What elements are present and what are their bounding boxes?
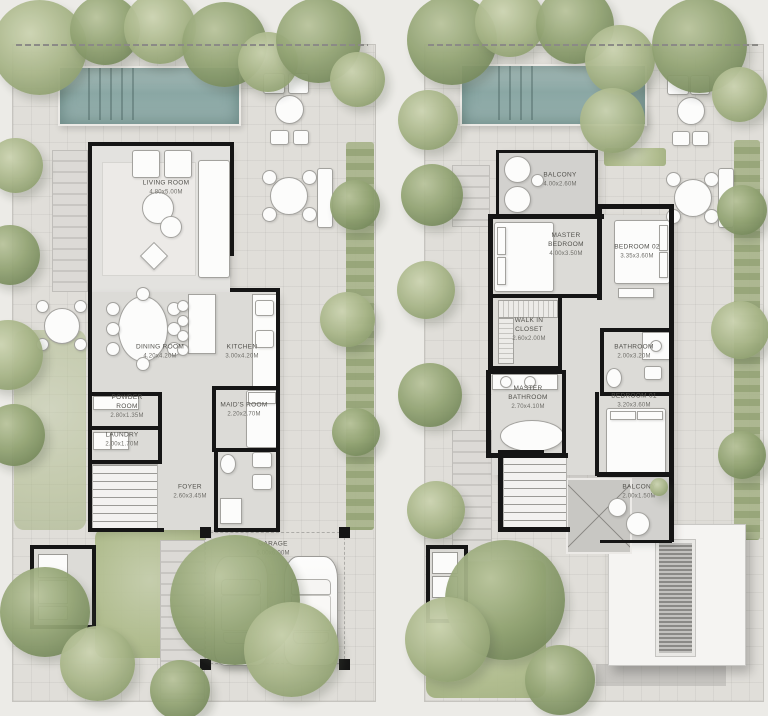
room-label-bedroom-01: BEDROOM 013.20x3.60M: [611, 393, 657, 410]
tree: [320, 292, 375, 347]
tree: [332, 408, 380, 456]
room-label-dining-room: DINING ROOM4.20x4.20M: [136, 344, 184, 361]
staircase: [92, 464, 158, 530]
roof-louver: [656, 540, 695, 656]
wall: [562, 370, 566, 458]
wall: [597, 472, 674, 477]
garden-table: [44, 308, 80, 344]
balcony-lounge-chair: [504, 186, 531, 213]
tree: [60, 626, 135, 701]
pillow: [497, 257, 506, 285]
tree: [401, 164, 463, 226]
balcony-lounge-chair: [504, 156, 531, 183]
armchair: [164, 150, 192, 178]
garden-chair: [36, 300, 49, 313]
armchair: [132, 150, 160, 178]
bed-bench: [618, 288, 654, 298]
wall: [214, 528, 280, 532]
sofa: [198, 160, 230, 278]
dining-chair: [106, 342, 120, 356]
wall: [600, 328, 604, 396]
terrace-chair: [666, 172, 681, 187]
room-label-living-room: LIVING ROOM4.80x5.00M: [143, 180, 190, 197]
tree: [150, 660, 210, 716]
terrace-chair: [262, 207, 277, 222]
tree: [525, 645, 595, 715]
room-label-laundry: LAUNDRY2.00x1.70M: [105, 432, 138, 449]
tree: [717, 185, 767, 235]
balcony-chair: [626, 512, 650, 536]
tree: [244, 602, 339, 697]
tree: [330, 52, 385, 107]
terrace-chair: [262, 170, 277, 185]
bar-stool: [177, 330, 189, 342]
wall: [488, 214, 493, 370]
sink: [644, 366, 662, 380]
fence-line: [428, 44, 758, 46]
sink: [252, 452, 272, 468]
tree: [711, 301, 768, 359]
room-label-balcony-top: BALCONY4.00x2.60M: [543, 172, 576, 189]
dining-chair: [106, 322, 120, 336]
fence-line: [16, 44, 368, 46]
wall: [212, 386, 216, 452]
wall: [276, 288, 280, 532]
outdoor-round-table: [677, 97, 705, 125]
bar-stool: [177, 315, 189, 327]
wall: [600, 204, 674, 209]
wall: [600, 540, 672, 543]
wall: [212, 448, 280, 452]
wall: [498, 527, 570, 532]
room-label-bedroom-02: BEDROOM 023.35x3.60M: [614, 244, 660, 261]
wall: [88, 460, 160, 464]
wall: [214, 448, 218, 528]
garden-steps-path: [52, 150, 88, 292]
wall: [490, 294, 602, 298]
coffee-table: [160, 216, 182, 238]
room-label-walk-in-closet: WALK IN CLOSET2.60x2.00M: [508, 317, 550, 343]
shower: [220, 498, 242, 524]
bidet: [252, 474, 272, 490]
garage-post: [339, 527, 350, 538]
wall: [595, 392, 599, 476]
room-label-master-bathroom: MASTER BATHROOM2.70x4.10M: [502, 385, 554, 411]
wall: [496, 150, 499, 218]
bar-stool: [177, 300, 189, 312]
wall: [486, 370, 491, 458]
lounge-chair: [270, 130, 289, 145]
wall: [558, 298, 562, 370]
wall: [496, 150, 598, 153]
lounge-chair: [672, 131, 690, 146]
kitchen-island: [188, 294, 216, 354]
garage-post: [339, 659, 350, 670]
wardrobe: [498, 300, 558, 318]
wall: [600, 328, 672, 332]
tree: [580, 88, 645, 153]
wall: [158, 392, 162, 464]
toilet: [606, 368, 622, 388]
tree: [330, 180, 380, 230]
terrace-chair: [704, 172, 719, 187]
wall: [498, 450, 503, 532]
wall: [498, 450, 544, 455]
lounge-chair: [692, 131, 709, 146]
balcony-chair: [608, 498, 627, 517]
wall: [212, 386, 280, 390]
bathtub: [500, 420, 564, 452]
pillow: [497, 227, 506, 255]
cooktop: [255, 300, 274, 316]
tree: [712, 67, 767, 122]
tree: [398, 363, 462, 427]
room-label-master-bedroom: MASTER BEDROOM4.00x3.50M: [541, 232, 591, 258]
tree: [407, 481, 465, 539]
room-label-foyer: FOYER2.60x3.45M: [173, 484, 206, 501]
balcony-side-table: [531, 174, 544, 187]
room-label-maids-room: MAID'S ROOM2.20x2.70M: [220, 402, 267, 419]
wall: [486, 370, 566, 374]
pillow: [659, 252, 668, 278]
pillow: [659, 225, 668, 251]
garden-chair: [74, 338, 87, 351]
room-label-powder-room: POWDER ROOM2.80x1.35M: [107, 394, 147, 420]
terrace-chair: [302, 207, 317, 222]
room-label-kitchen: KITCHEN3.00x4.20M: [225, 344, 258, 361]
tree: [405, 597, 490, 682]
staircase: [503, 455, 567, 529]
pool-steps: [498, 66, 538, 120]
tree: [398, 90, 458, 150]
pillow: [637, 411, 663, 420]
floor-plan-screenshot: LIVING ROOM4.80x5.00M DINING ROOM4.20x4.…: [0, 0, 768, 716]
dining-chair: [136, 287, 150, 301]
wall: [88, 142, 234, 146]
lounge-chair: [293, 130, 309, 145]
wall: [597, 204, 602, 300]
tree: [718, 431, 766, 479]
tree: [585, 25, 655, 95]
pool-steps: [88, 68, 134, 120]
wall: [88, 142, 92, 532]
wall: [669, 476, 674, 542]
garden-chair: [74, 300, 87, 313]
roof-shadow: [596, 664, 726, 686]
wall: [88, 528, 164, 532]
dining-chair: [106, 302, 120, 316]
terrace-chair: [302, 170, 317, 185]
wall: [88, 426, 162, 430]
outdoor-round-table: [275, 95, 304, 124]
room-label-bathroom: BATHROOM2.00x3.20M: [614, 344, 653, 361]
wall: [230, 288, 280, 292]
toilet: [220, 454, 236, 474]
pillow: [610, 411, 636, 420]
wall: [669, 204, 674, 476]
wall: [490, 214, 604, 219]
garage-post: [200, 527, 211, 538]
wall: [230, 142, 234, 256]
potted-plant: [650, 478, 668, 496]
tree: [397, 261, 455, 319]
